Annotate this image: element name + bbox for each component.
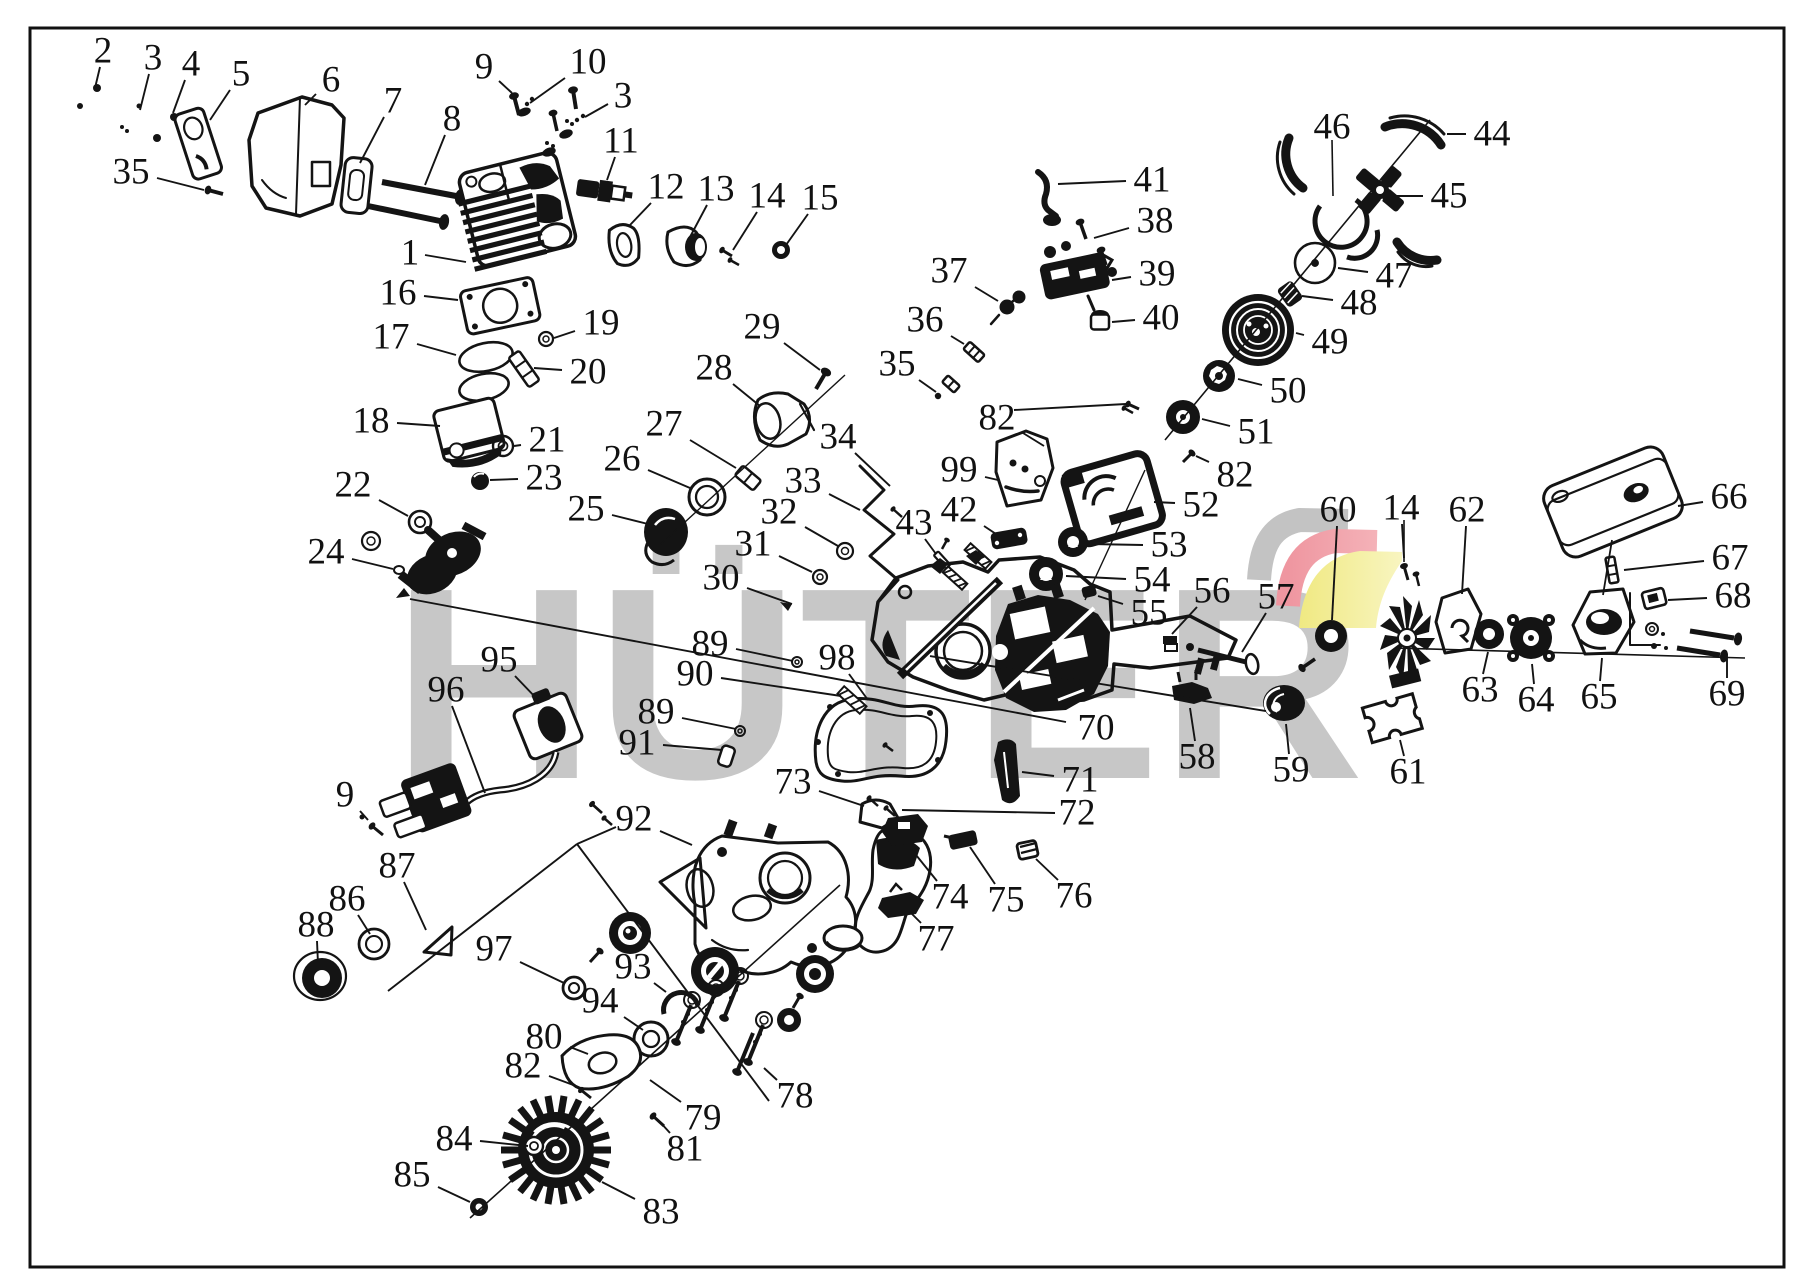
svg-text:98: 98 [819, 638, 856, 679]
svg-text:59: 59 [1273, 750, 1310, 791]
svg-text:55: 55 [1131, 593, 1168, 634]
svg-text:73: 73 [775, 762, 812, 803]
svg-text:6: 6 [322, 60, 341, 101]
svg-text:45: 45 [1431, 176, 1468, 217]
svg-text:94: 94 [582, 981, 619, 1022]
svg-text:40: 40 [1143, 298, 1180, 339]
svg-text:22: 22 [335, 465, 372, 506]
svg-text:5: 5 [232, 54, 251, 95]
svg-text:28: 28 [696, 348, 733, 389]
svg-text:18: 18 [353, 401, 390, 442]
svg-text:74: 74 [932, 877, 969, 918]
svg-text:91: 91 [619, 723, 656, 764]
svg-text:8: 8 [443, 99, 462, 140]
svg-text:1: 1 [401, 233, 420, 274]
svg-text:44: 44 [1474, 114, 1511, 155]
svg-text:11: 11 [603, 121, 639, 162]
svg-text:21: 21 [529, 420, 566, 461]
svg-text:82: 82 [979, 398, 1016, 439]
svg-text:69: 69 [1709, 674, 1746, 715]
svg-text:46: 46 [1314, 107, 1351, 148]
svg-text:37: 37 [931, 251, 968, 292]
svg-text:26: 26 [604, 439, 641, 480]
svg-text:64: 64 [1518, 680, 1555, 721]
svg-text:3: 3 [144, 38, 163, 79]
svg-text:35: 35 [879, 344, 916, 385]
svg-text:20: 20 [570, 352, 607, 393]
svg-text:92: 92 [616, 799, 653, 840]
svg-text:50: 50 [1270, 371, 1307, 412]
svg-text:62: 62 [1449, 490, 1486, 531]
svg-text:23: 23 [526, 458, 563, 499]
svg-text:34: 34 [820, 417, 857, 458]
svg-text:77: 77 [918, 919, 955, 960]
svg-text:38: 38 [1137, 201, 1174, 242]
svg-text:88: 88 [298, 905, 335, 946]
svg-text:75: 75 [988, 880, 1025, 921]
svg-text:17: 17 [373, 317, 410, 358]
svg-text:48: 48 [1341, 283, 1378, 324]
svg-text:7: 7 [384, 81, 403, 122]
svg-text:90: 90 [677, 654, 714, 695]
svg-text:72: 72 [1059, 793, 1096, 834]
svg-text:15: 15 [802, 178, 839, 219]
svg-text:4: 4 [182, 44, 201, 85]
svg-text:29: 29 [744, 307, 781, 348]
svg-text:41: 41 [1134, 160, 1171, 201]
svg-text:52: 52 [1183, 485, 1220, 526]
svg-text:3: 3 [614, 76, 633, 117]
svg-text:43: 43 [896, 503, 933, 544]
svg-text:68: 68 [1715, 576, 1752, 617]
svg-text:58: 58 [1179, 737, 1216, 778]
svg-text:99: 99 [941, 450, 978, 491]
svg-text:70: 70 [1078, 708, 1115, 749]
svg-text:42: 42 [941, 490, 978, 531]
svg-text:83: 83 [643, 1192, 680, 1233]
svg-text:36: 36 [907, 300, 944, 341]
svg-text:57: 57 [1258, 577, 1295, 618]
svg-text:10: 10 [570, 42, 607, 83]
svg-text:78: 78 [777, 1076, 814, 1117]
svg-text:35: 35 [113, 152, 150, 193]
svg-text:9: 9 [336, 775, 355, 816]
svg-text:2: 2 [94, 31, 113, 72]
svg-text:49: 49 [1312, 322, 1349, 363]
svg-text:51: 51 [1238, 412, 1275, 453]
svg-text:19: 19 [583, 303, 620, 344]
svg-text:93: 93 [615, 947, 652, 988]
svg-text:95: 95 [481, 640, 518, 681]
svg-text:56: 56 [1194, 571, 1231, 612]
svg-text:13: 13 [698, 169, 735, 210]
svg-text:25: 25 [568, 489, 605, 530]
svg-text:39: 39 [1139, 254, 1176, 295]
svg-text:85: 85 [394, 1155, 431, 1196]
svg-text:61: 61 [1390, 752, 1427, 793]
svg-text:87: 87 [379, 846, 416, 887]
svg-text:65: 65 [1581, 677, 1618, 718]
svg-text:76: 76 [1056, 876, 1093, 917]
svg-text:96: 96 [428, 670, 465, 711]
svg-text:14: 14 [749, 176, 786, 217]
svg-text:82: 82 [505, 1046, 542, 1087]
svg-text:33: 33 [785, 461, 822, 502]
svg-text:27: 27 [646, 404, 683, 445]
svg-text:60: 60 [1320, 490, 1357, 531]
svg-text:12: 12 [648, 167, 685, 208]
svg-text:66: 66 [1711, 477, 1748, 518]
svg-text:81: 81 [667, 1129, 704, 1170]
svg-text:67: 67 [1712, 538, 1749, 579]
svg-text:97: 97 [476, 929, 513, 970]
svg-text:16: 16 [380, 273, 417, 314]
svg-text:47: 47 [1376, 256, 1413, 297]
svg-text:63: 63 [1462, 670, 1499, 711]
svg-text:9: 9 [475, 47, 494, 88]
svg-text:84: 84 [436, 1119, 473, 1160]
svg-text:82: 82 [1217, 455, 1254, 496]
svg-text:24: 24 [308, 532, 345, 573]
svg-text:14: 14 [1383, 488, 1420, 529]
